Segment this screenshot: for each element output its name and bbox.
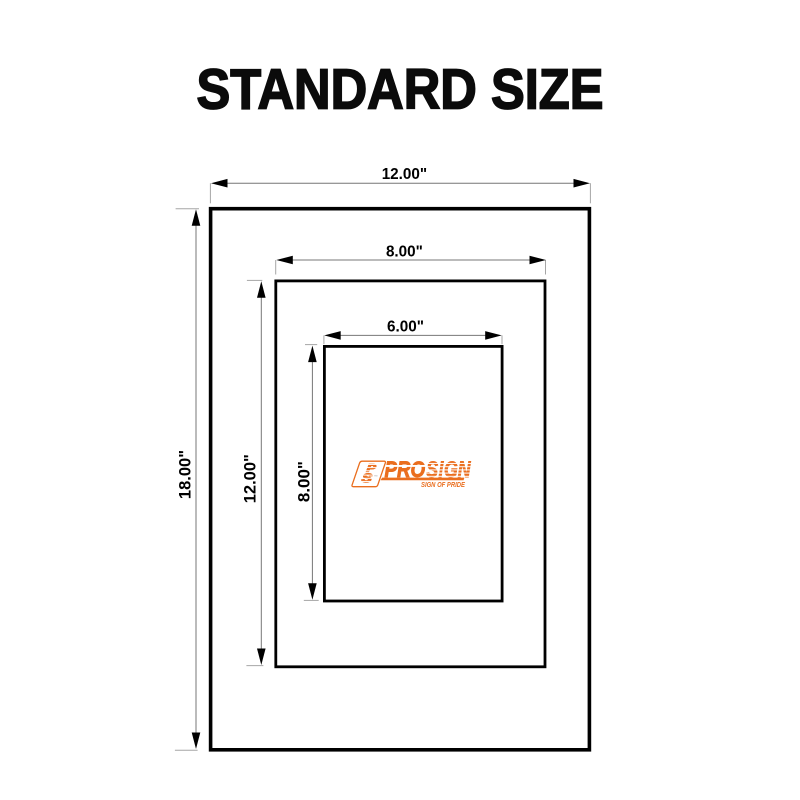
svg-text:12.00": 12.00" (382, 166, 427, 183)
svg-text:S: S (361, 471, 373, 484)
svg-text:6.00": 6.00" (387, 318, 424, 335)
svg-text:SIGN OF PRIDE: SIGN OF PRIDE (421, 480, 466, 489)
svg-text:8.00": 8.00" (386, 244, 423, 261)
svg-text:12.00": 12.00" (241, 454, 259, 503)
svg-text:18.00": 18.00" (177, 450, 195, 499)
svg-text:8.00": 8.00" (296, 461, 314, 502)
svg-text:STANDARD SIZE: STANDARD SIZE (197, 58, 604, 122)
svg-text:™: ™ (374, 475, 378, 479)
